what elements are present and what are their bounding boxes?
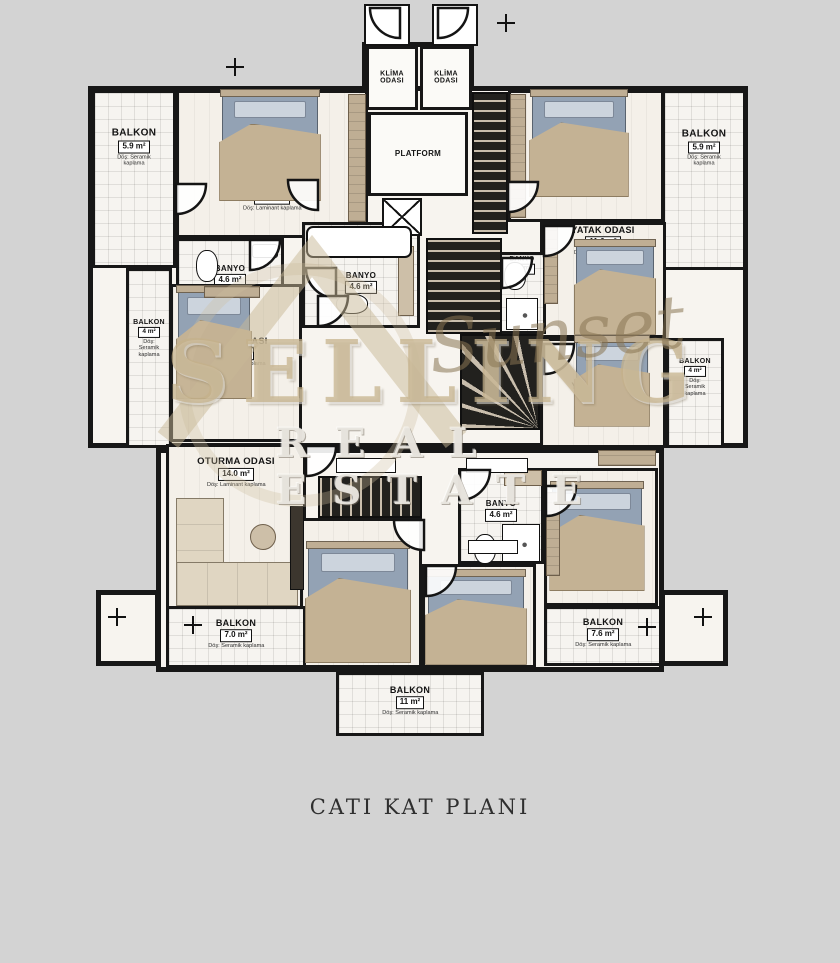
room-area-badge: 4 m² <box>138 327 159 338</box>
room-area-badge: 14.0 m² <box>218 468 254 481</box>
door-arc <box>288 180 318 210</box>
staircase <box>460 334 540 430</box>
room-name: BALKON <box>390 686 430 695</box>
bed-pillow <box>234 101 306 118</box>
floor-plan-page: BALKON5.9 m²Döş: Seramik kaplamaYATAK OD… <box>0 0 840 958</box>
door-arc <box>306 446 336 476</box>
room-balkon-top-left: BALKON5.9 m²Döş: Seramik kaplama <box>92 90 176 268</box>
bed-blanket <box>529 122 628 196</box>
door-arc <box>394 520 424 550</box>
room-balkon-bottom-right: BALKON7.6 m²Döş: Seramik kaplama <box>544 606 662 666</box>
room-name: YATAK ODASI <box>571 226 634 235</box>
bed-blanket <box>574 269 656 334</box>
room-label: OTURMA ODASI14.0 m²Döş: Laminant kaplama <box>169 457 303 491</box>
dimension-mark <box>638 618 656 636</box>
bed-pillow <box>585 346 639 360</box>
room-area-badge: 7.6 m² <box>587 629 618 642</box>
annotation-tag <box>468 540 518 554</box>
door-arc <box>544 226 574 256</box>
wardrobe <box>598 450 656 466</box>
room-label: BALKON11 m²Döş: Seramik kaplama <box>339 686 481 720</box>
door-arc <box>306 268 336 298</box>
bed-headboard <box>530 89 628 97</box>
room-name: OTURMA ODASI <box>197 457 275 467</box>
plan-caption: CATI KAT PLANI <box>0 795 840 819</box>
bed-blanket <box>549 515 644 591</box>
room-floor-note: Döş: Seramik kaplama <box>208 642 264 648</box>
room-name: KLİMA ODASI <box>434 71 458 86</box>
bed-pillow <box>586 250 644 265</box>
bed-blanket <box>425 599 527 664</box>
room-name: BALKON <box>583 618 623 627</box>
dimension-mark <box>497 14 515 32</box>
bed-headboard <box>220 89 320 97</box>
room-label: BANYO4.6 m² <box>461 500 541 522</box>
room-label: BALKON4 m²Döş: Seramik kaplama <box>669 358 721 408</box>
room-floor-note: Döş: Seramik kaplama <box>680 154 728 167</box>
room-balkon-bottom-center: BALKON11 m²Döş: Seramik kaplama <box>336 672 484 736</box>
bed <box>178 292 250 398</box>
wardrobe <box>204 286 260 298</box>
coffee-table <box>250 524 276 550</box>
room-label: BALKON5.9 m²Döş: Seramik kaplama <box>95 129 173 174</box>
room-label: PLATFORM <box>371 150 465 158</box>
dimension-mark <box>226 58 244 76</box>
room-floor-note: Döş: Seramik kaplama <box>575 641 631 647</box>
door-arc <box>426 566 456 596</box>
room-name: BALKON <box>216 619 256 628</box>
room-floor-note: Döş: Seramik kaplama <box>137 338 162 357</box>
room-name: BALKON <box>112 129 157 140</box>
annotation-tag <box>336 458 396 473</box>
door-arc <box>460 470 490 500</box>
room-area-badge: 4.6 m² <box>345 281 376 294</box>
room-balkon-mid-left: BALKON4 m²Döş: Seramik kaplama <box>126 268 172 448</box>
bed-pillow <box>544 101 614 118</box>
dimension-mark <box>694 608 712 626</box>
room-name: BANYO <box>486 500 516 508</box>
room-balkon-top-right: BALKON5.9 m²Döş: Seramik kaplama <box>662 90 746 270</box>
room-label: BALKON5.9 m²Döş: Seramik kaplama <box>665 130 743 175</box>
bed-headboard <box>574 239 656 247</box>
room-name: BALKON <box>682 130 727 141</box>
room-name: BALKON <box>679 358 711 365</box>
bed <box>576 342 648 426</box>
room-area-badge: 4.6 m² <box>485 509 516 522</box>
room-label: BALKON4 m²Döş: Seramik kaplama <box>129 319 169 369</box>
room-floor-note: Döş: Seramik kaplama <box>110 153 158 166</box>
door-arc <box>544 344 574 374</box>
bed-pillow <box>187 297 241 315</box>
dimension-mark <box>108 608 126 626</box>
bed-blanket <box>574 364 650 426</box>
building-footprint <box>96 590 160 666</box>
room-floor-note: Döş: Seramik kaplama <box>382 709 438 715</box>
room-klima-odasi-1: KLİMA ODASI <box>366 46 418 110</box>
room-area-badge: 4 m² <box>684 366 705 377</box>
building-footprint <box>660 590 728 666</box>
door-arc <box>250 240 280 270</box>
room-name: BANYO <box>215 265 245 273</box>
room-label: KLİMA ODASI <box>369 71 415 86</box>
door-arc <box>318 296 348 326</box>
shower-tray <box>506 298 538 330</box>
bed-headboard <box>574 335 650 343</box>
room-floor-note: Döş: Seramik kaplama <box>679 377 711 396</box>
door-arc <box>502 258 532 288</box>
room-area-badge: 5.9 m² <box>118 140 149 153</box>
bed <box>308 548 408 662</box>
door-arc <box>370 8 400 38</box>
room-area-badge: 11 m² <box>396 696 424 709</box>
room-name: BALKON <box>133 319 165 326</box>
room-balkon-mid-right: BALKON4 m²Döş: Seramik kaplama <box>666 338 724 448</box>
bed-blanket <box>176 320 252 399</box>
staircase <box>426 238 502 334</box>
dimension-mark <box>184 616 202 634</box>
door-arc <box>508 182 538 212</box>
bathtub <box>306 226 412 258</box>
door-arc <box>546 486 576 516</box>
bed-pillow <box>321 553 396 572</box>
door-arc <box>176 184 206 214</box>
room-klima-odasi-2: KLİMA ODASI <box>420 46 472 110</box>
room-area-badge: 5.9 m² <box>688 141 719 154</box>
tv-unit <box>290 506 304 590</box>
room-floor-note: Döş: Laminant kaplama <box>207 481 266 487</box>
staircase <box>472 92 508 234</box>
door-arc <box>438 8 468 38</box>
toilet <box>196 250 218 282</box>
bed <box>576 246 654 334</box>
wardrobe <box>348 94 366 222</box>
staircase <box>318 476 422 518</box>
room-name: BANYO <box>346 272 376 280</box>
bed <box>532 96 626 196</box>
room-area-badge: 7.0 m² <box>220 630 251 643</box>
room-name: KLİMA ODASI <box>380 71 404 86</box>
room-label: KLİMA ODASI <box>423 71 469 86</box>
bed-blanket <box>305 578 411 663</box>
sofa <box>176 562 298 606</box>
room-platform: PLATFORM <box>368 112 468 196</box>
room-name: PLATFORM <box>395 150 441 158</box>
